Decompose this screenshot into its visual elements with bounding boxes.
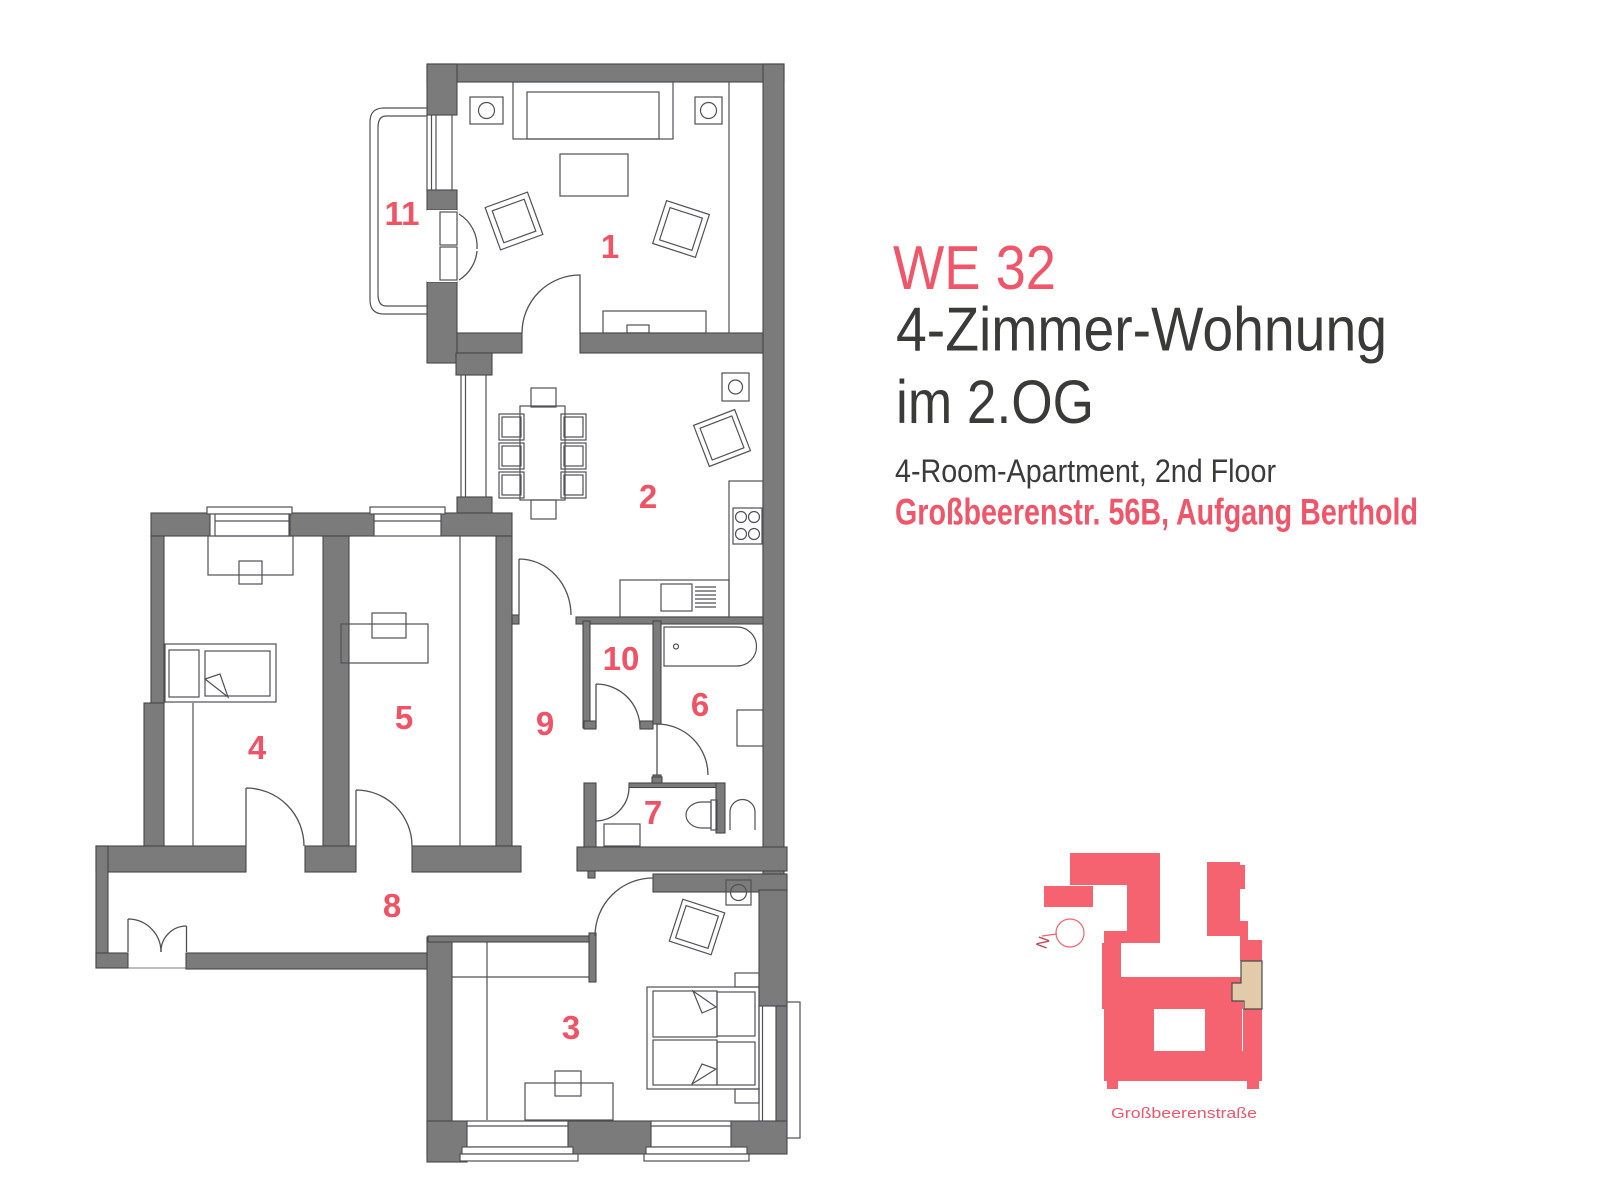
svg-text:WE 32: WE 32: [893, 234, 1056, 303]
svg-text:im 2.OG: im 2.OG: [896, 368, 1094, 436]
svg-text:4: 4: [248, 729, 267, 766]
svg-text:4-Zimmer-Wohnung: 4-Zimmer-Wohnung: [896, 296, 1387, 365]
svg-text:7: 7: [644, 794, 662, 831]
svg-text:8: 8: [383, 887, 401, 924]
svg-text:4-Room-Apartment, 2nd Floor: 4-Room-Apartment, 2nd Floor: [895, 453, 1276, 489]
svg-text:9: 9: [536, 705, 554, 742]
svg-text:Großbeerenstr. 56B, Aufgang Be: Großbeerenstr. 56B, Aufgang Berthold: [895, 491, 1418, 533]
svg-text:5: 5: [395, 699, 413, 736]
svg-text:Großbeerenstraße: Großbeerenstraße: [1111, 1105, 1257, 1122]
svg-text:10: 10: [603, 640, 640, 677]
svg-text:N: N: [1034, 934, 1054, 951]
svg-text:11: 11: [385, 195, 420, 232]
svg-text:2: 2: [639, 478, 657, 515]
svg-text:6: 6: [691, 686, 709, 723]
svg-text:3: 3: [562, 1009, 580, 1046]
svg-text:1: 1: [601, 228, 619, 265]
